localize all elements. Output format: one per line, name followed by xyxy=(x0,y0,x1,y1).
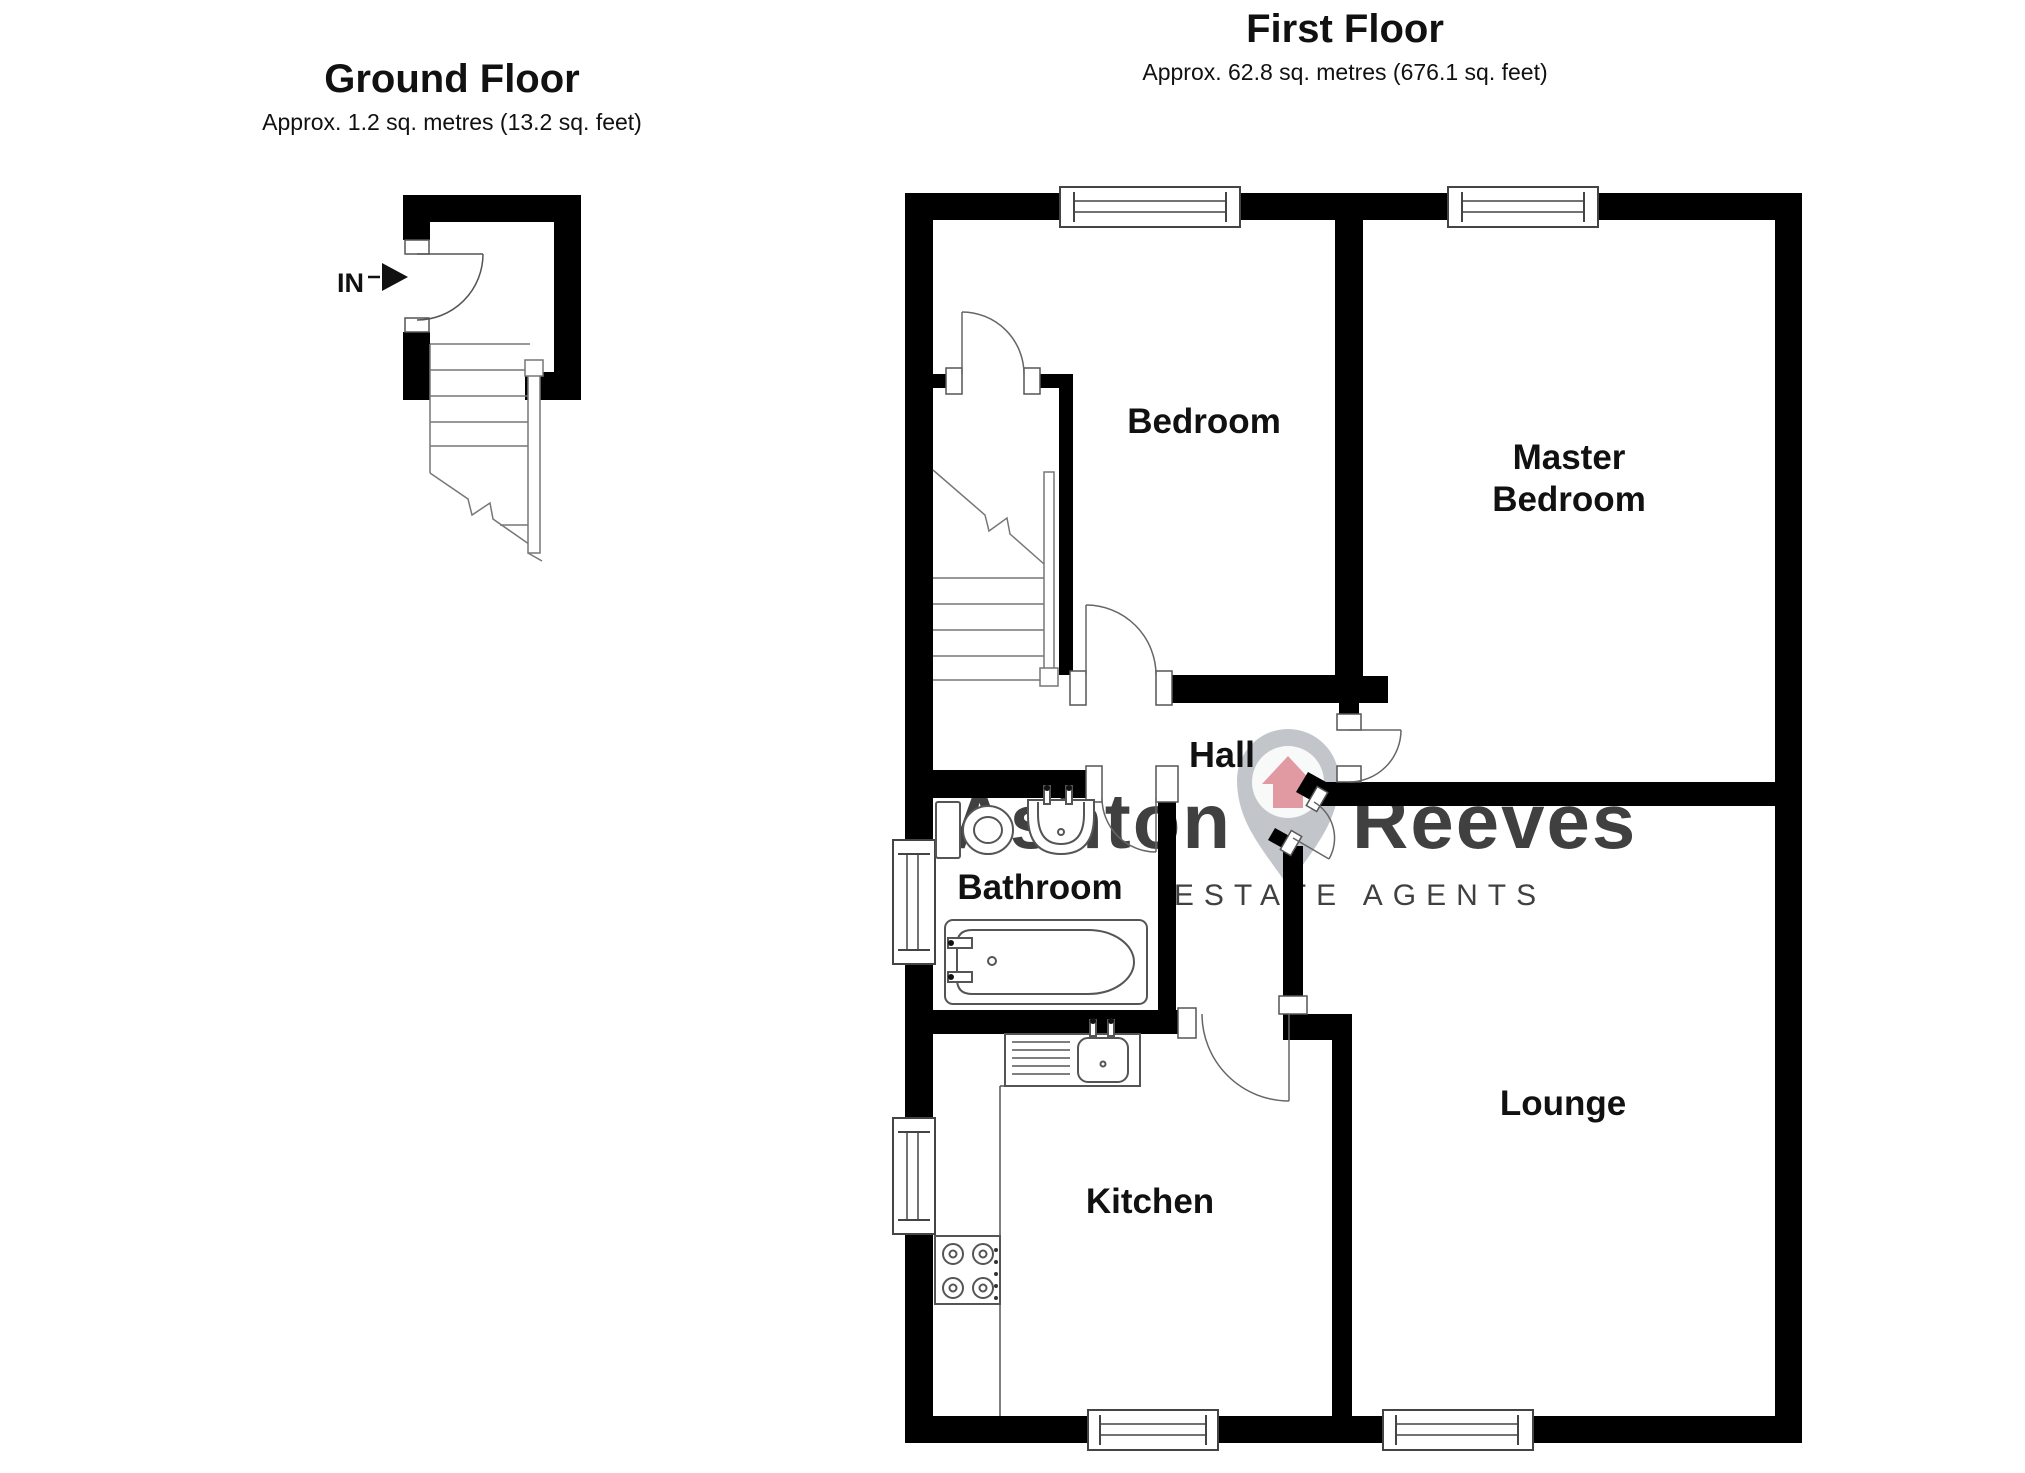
door-swing-arc xyxy=(1086,605,1156,675)
ground-floor-subtitle: Approx. 1.2 sq. metres (13.2 sq. feet) xyxy=(262,109,642,135)
stair-break-line xyxy=(933,470,1044,564)
kitchen-door xyxy=(1202,1014,1289,1101)
master-bedroom-label-line1: Master xyxy=(1513,438,1626,477)
stair-rail-end xyxy=(528,553,542,561)
door-jamb xyxy=(1337,714,1361,730)
stair-rail xyxy=(1044,472,1054,674)
hall-label: Hall xyxy=(1189,734,1255,775)
door-jamb xyxy=(1070,671,1086,705)
wall-bathroom-bottom xyxy=(933,1010,1180,1034)
bathroom-window xyxy=(893,840,935,964)
wall-segment xyxy=(1363,676,1388,703)
wall-segment xyxy=(933,374,946,388)
first-floor-plan: Bedroom Master Bedroom Hall Bathroom Kit… xyxy=(893,187,1802,1450)
first-floor-title: First Floor xyxy=(1246,7,1444,51)
watermark-tagline: ESTATE AGENTS xyxy=(1174,879,1546,912)
wall-segment xyxy=(403,195,430,240)
floorplan-canvas: Ground Floor Approx. 1.2 sq. metres (13.… xyxy=(0,0,2025,1473)
wall-hall-lounge xyxy=(1283,846,1303,998)
wall-master-bottom xyxy=(1316,782,1775,806)
stair-newel xyxy=(1040,668,1058,686)
door-jamb xyxy=(1337,766,1361,782)
lounge-window xyxy=(1383,1410,1533,1450)
wall-bathroom-top xyxy=(933,770,1086,798)
door-swing-arc xyxy=(1202,1014,1289,1101)
wall-left xyxy=(905,193,933,1443)
wall-top xyxy=(905,193,1802,220)
kitchen-label: Kitchen xyxy=(1086,1182,1214,1221)
floorplan-document: Ground Floor Approx. 1.2 sq. metres (13.… xyxy=(0,0,2025,1473)
in-arrow-icon xyxy=(382,263,408,291)
master-bedroom-window xyxy=(1448,187,1598,227)
wall-segment xyxy=(1283,1014,1352,1040)
kitchen-bottom-window xyxy=(1088,1410,1218,1450)
door-jamb xyxy=(946,368,962,394)
door-jamb xyxy=(1024,368,1040,394)
kitchen-counter xyxy=(1000,1086,1140,1416)
wall-right xyxy=(1775,193,1802,1443)
landing-door xyxy=(962,312,1024,374)
door-jamb xyxy=(1156,671,1172,705)
stair-rail xyxy=(528,363,540,553)
door-swing-arc xyxy=(962,312,1024,374)
first-floor-stairs xyxy=(933,470,1058,686)
ground-floor-title: Ground Floor xyxy=(324,57,580,101)
entrance-in-marker: IN xyxy=(337,263,408,298)
bedroom-door xyxy=(1086,605,1156,675)
wall-bedroom-master-divider xyxy=(1335,220,1363,703)
door-jamb xyxy=(405,240,429,254)
wall-segment xyxy=(1040,374,1059,388)
wall-stairwell xyxy=(1059,374,1073,675)
wall-bathroom-right xyxy=(1158,798,1176,1014)
door-jamb xyxy=(1156,766,1178,802)
kitchen-side-window xyxy=(893,1118,935,1234)
first-floor-subtitle: Approx. 62.8 sq. metres (676.1 sq. feet) xyxy=(1142,59,1547,85)
door-swing-arc xyxy=(417,254,483,320)
stair-newel xyxy=(525,360,543,376)
bathtub-icon xyxy=(945,920,1147,1004)
bathroom-label: Bathroom xyxy=(957,868,1122,907)
entrance-door xyxy=(405,240,483,332)
ground-floor-plan: IN xyxy=(337,195,581,561)
bedroom-label: Bedroom xyxy=(1127,402,1281,441)
master-bedroom-label-line2: Bedroom xyxy=(1492,480,1646,519)
wall-kitchen-lounge-divider xyxy=(1332,1040,1352,1416)
bedroom-window xyxy=(1060,187,1240,227)
door-jamb xyxy=(1279,996,1307,1014)
in-label: IN xyxy=(337,268,364,298)
wall-segment xyxy=(554,195,581,400)
wall-segment xyxy=(403,332,430,400)
wall-bedroom-bottom xyxy=(1172,675,1335,703)
stair-break-line xyxy=(430,473,536,549)
door-jamb xyxy=(1086,766,1102,802)
wall-bottom xyxy=(905,1416,1802,1443)
hob-icon xyxy=(935,1236,1000,1304)
ground-floor-stairs xyxy=(430,344,543,561)
lounge-label: Lounge xyxy=(1500,1084,1626,1123)
toilet-icon xyxy=(936,802,1013,858)
door-jamb xyxy=(1178,1008,1196,1038)
